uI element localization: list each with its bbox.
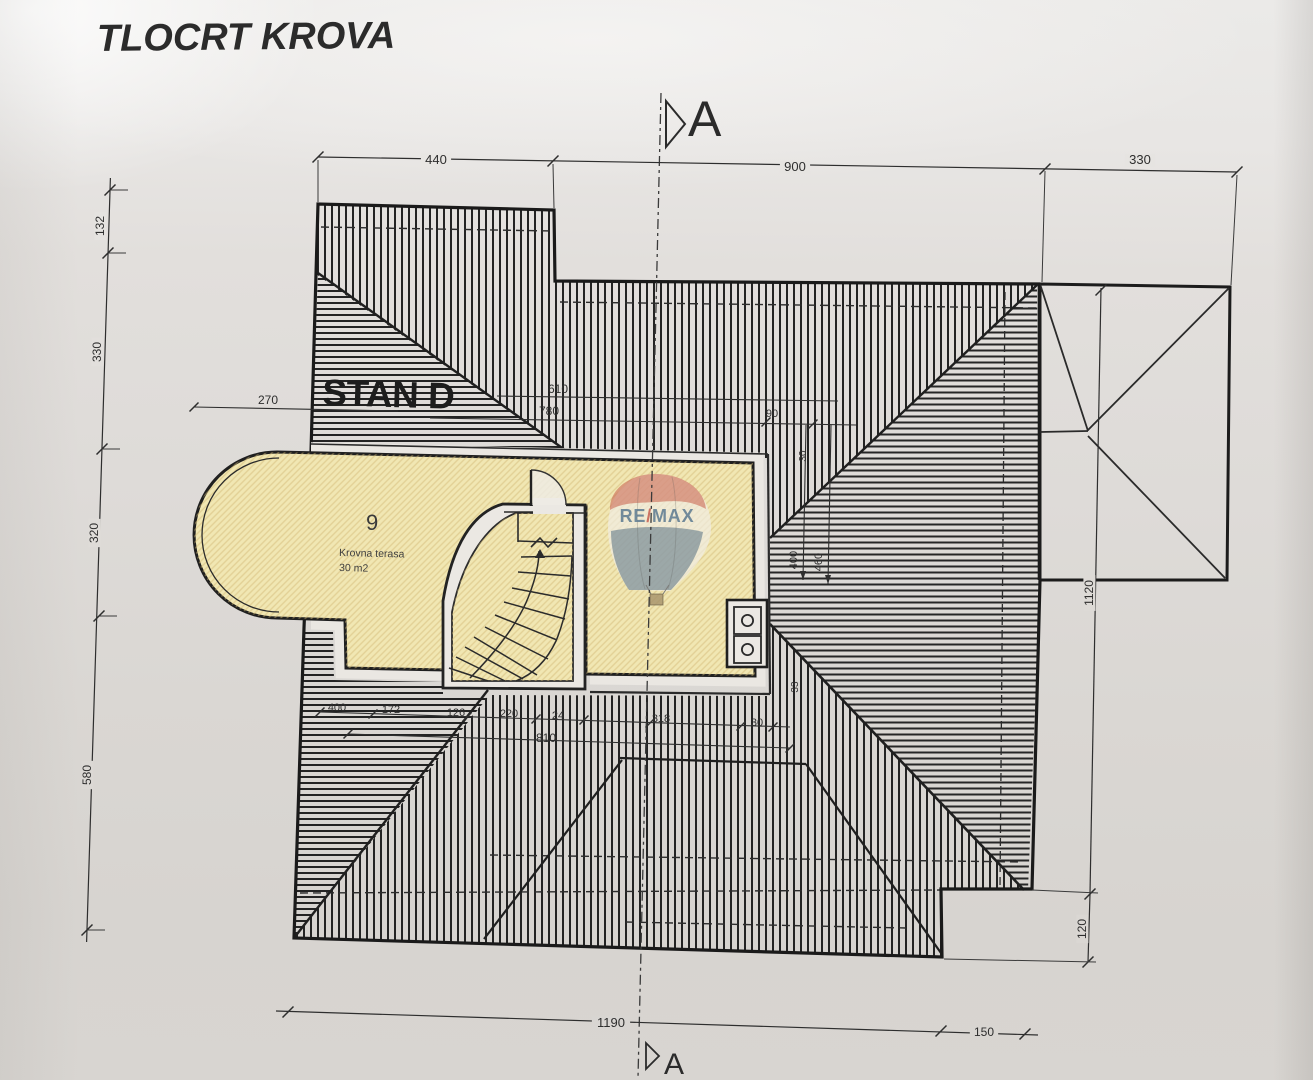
- svg-text:318: 318: [652, 713, 670, 725]
- svg-text:580: 580: [80, 765, 94, 785]
- svg-text:A: A: [688, 91, 722, 147]
- svg-text:1190: 1190: [597, 1015, 625, 1030]
- svg-text:33: 33: [790, 681, 801, 693]
- svg-text:172: 172: [382, 704, 400, 716]
- svg-text:30: 30: [798, 450, 809, 462]
- svg-text:TLOCRT KROVA: TLOCRT KROVA: [97, 15, 396, 60]
- svg-text:24: 24: [552, 710, 564, 722]
- svg-text:780: 780: [539, 404, 559, 418]
- svg-text:A: A: [664, 1048, 684, 1080]
- svg-text:30 m2: 30 m2: [339, 562, 369, 575]
- svg-text:330: 330: [90, 342, 104, 362]
- svg-text:610: 610: [548, 382, 568, 396]
- svg-text:120: 120: [1075, 919, 1089, 939]
- svg-text:810: 810: [536, 731, 556, 745]
- svg-text:Krovna terasa: Krovna terasa: [339, 547, 405, 560]
- svg-text:90: 90: [766, 408, 778, 420]
- svg-text:400: 400: [328, 702, 346, 714]
- svg-text:460: 460: [813, 553, 825, 571]
- svg-text:1120: 1120: [1082, 580, 1096, 606]
- svg-text:STAN D: STAN D: [322, 372, 455, 417]
- svg-text:400: 400: [788, 551, 800, 569]
- svg-text:30: 30: [751, 717, 763, 729]
- svg-text:RE/MAX: RE/MAX: [620, 506, 695, 526]
- svg-text:900: 900: [784, 159, 806, 174]
- svg-text:330: 330: [1129, 152, 1151, 167]
- svg-text:126: 126: [447, 707, 465, 719]
- svg-text:270: 270: [258, 393, 278, 407]
- svg-text:150: 150: [974, 1025, 994, 1039]
- svg-text:440: 440: [425, 152, 447, 167]
- svg-text:9: 9: [366, 510, 378, 535]
- svg-text:320: 320: [87, 523, 101, 543]
- svg-text:220: 220: [500, 708, 518, 720]
- svg-text:132: 132: [93, 216, 107, 236]
